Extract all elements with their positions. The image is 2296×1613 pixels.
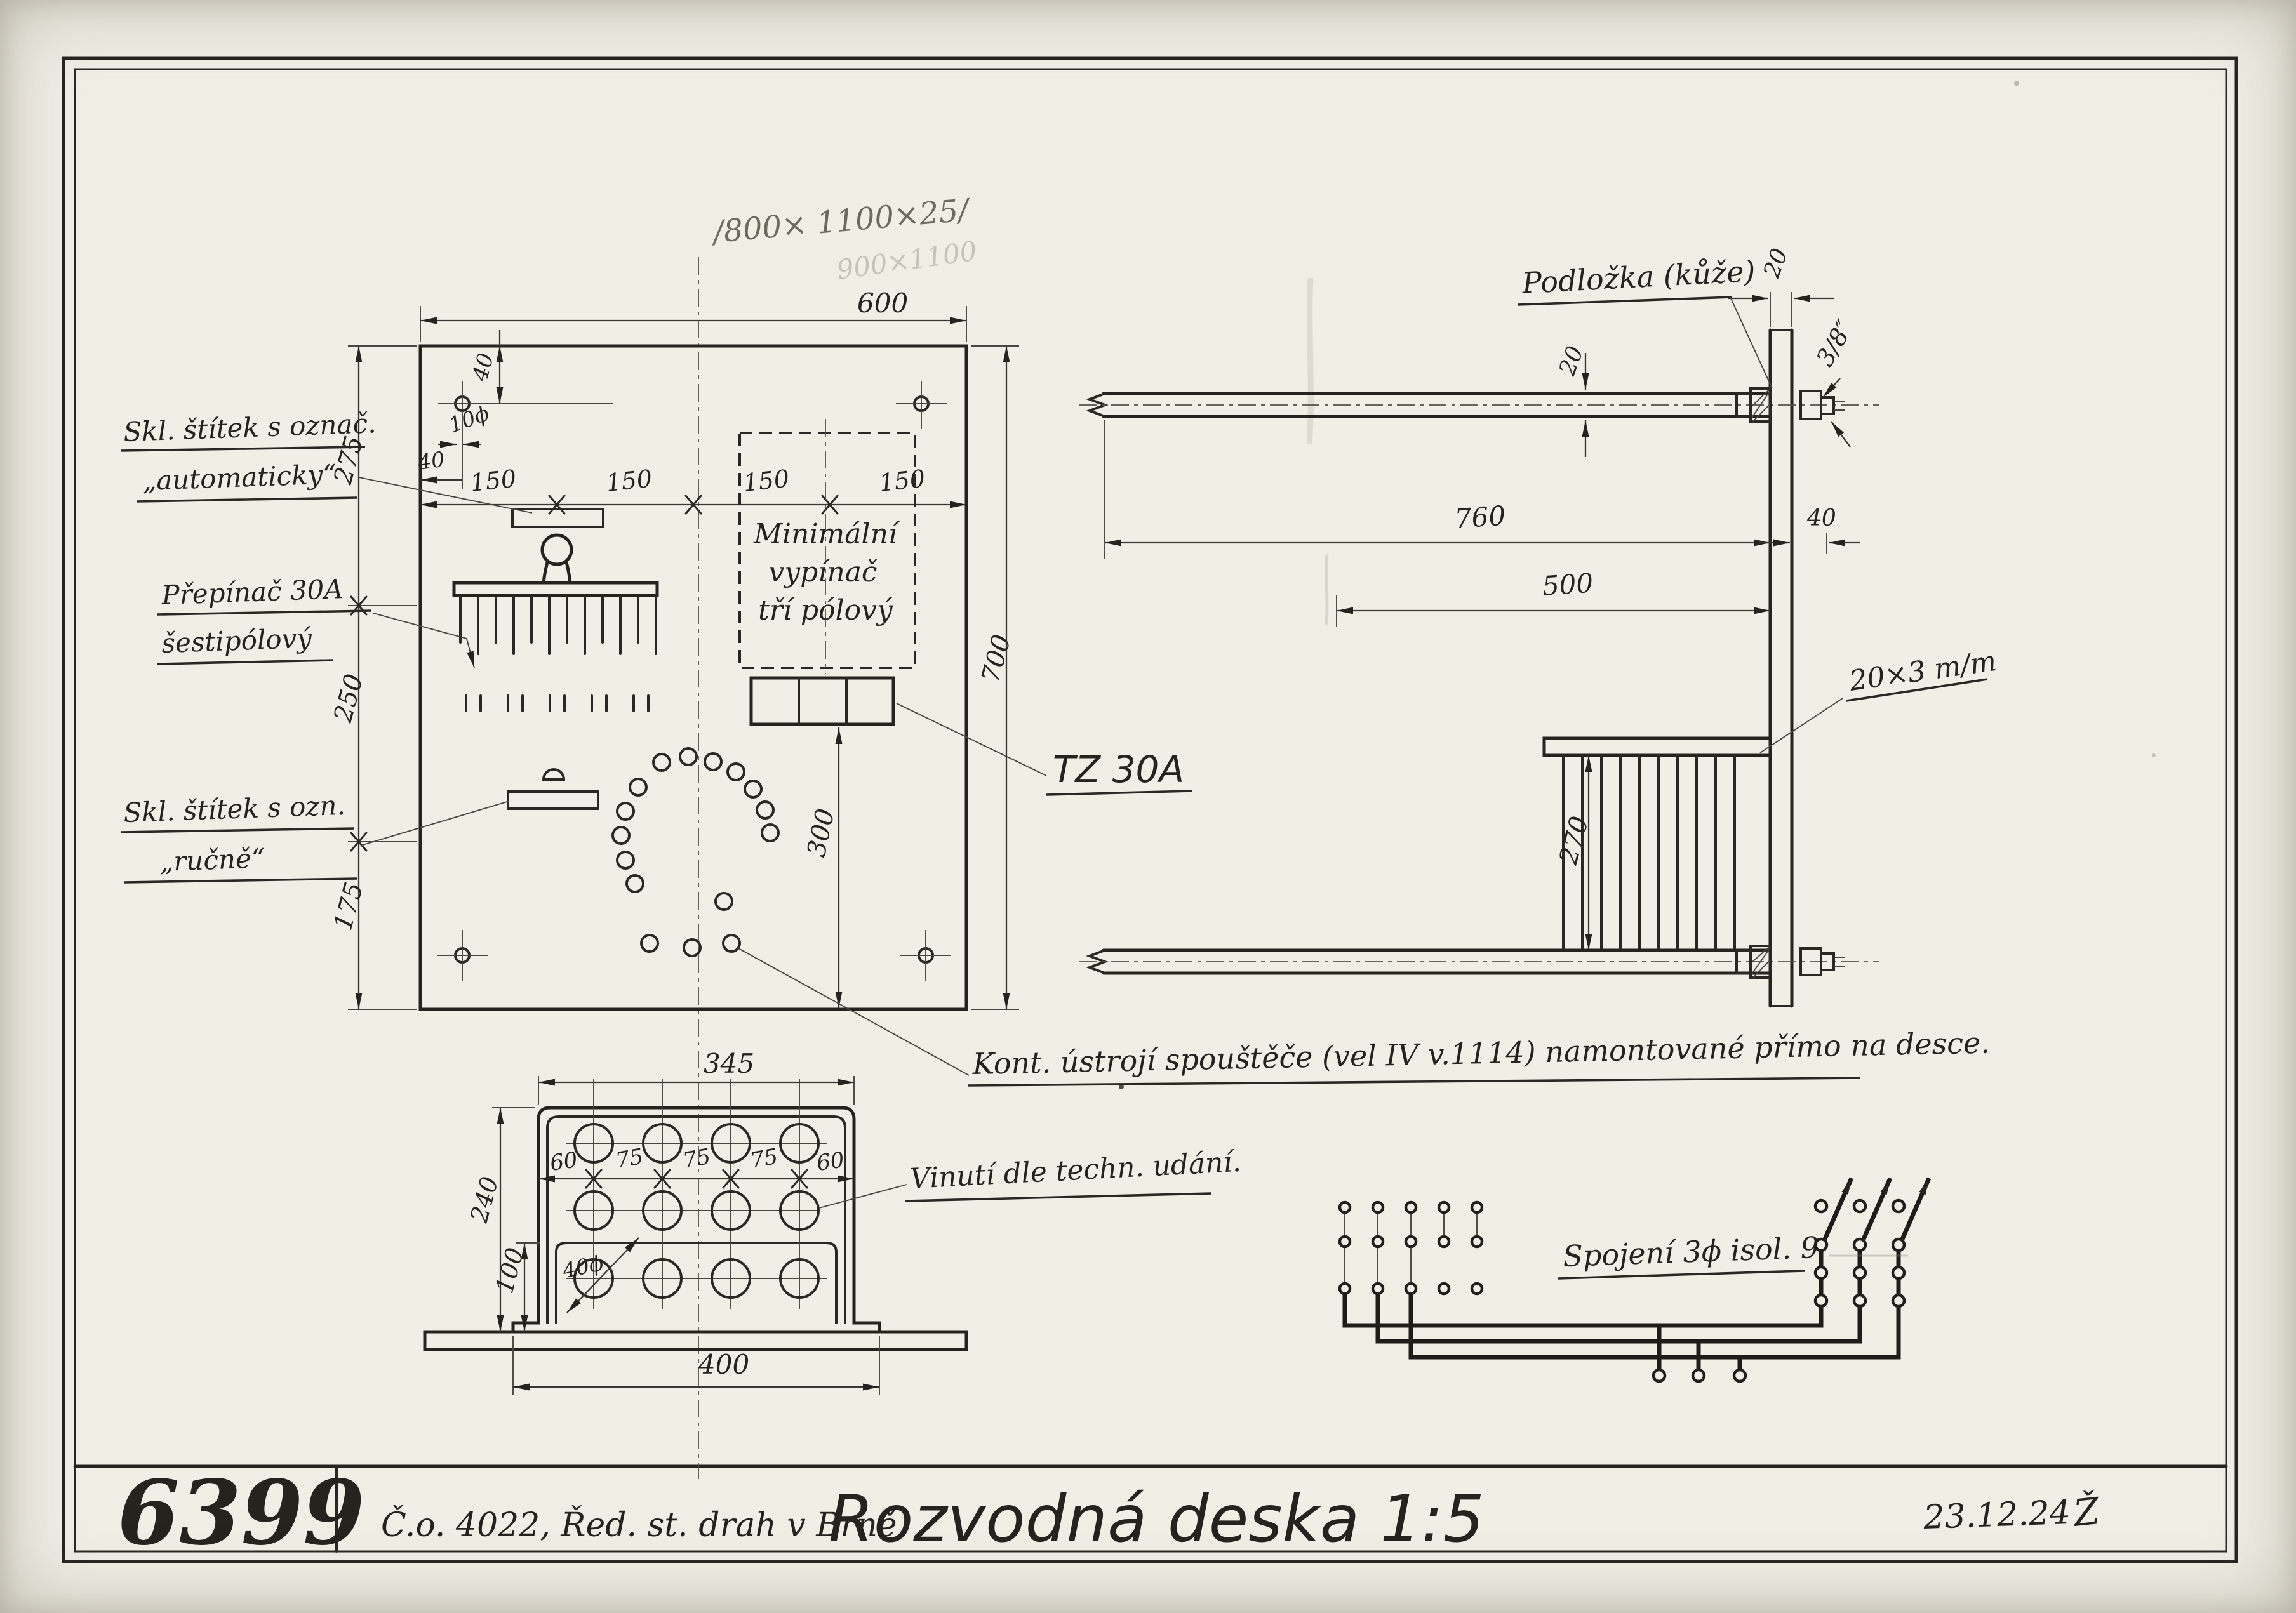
label-kont: Kont. ústrojí spouštěče (vel IV v.1114) … <box>971 1025 1990 1081</box>
base-panel-edge <box>425 1332 966 1350</box>
bottom-section-view: 345 60 75 75 75 60 240 100 40ϕ <box>425 1048 1242 1395</box>
tz-terminal-block: 300 <box>751 678 893 1008</box>
connection-schematic: Spojení 3ϕ isol. 9 <box>1340 1178 1929 1381</box>
dim-100: 100 <box>490 1243 540 1332</box>
dim-40-offset-label: 40 <box>1806 505 1836 531</box>
dim-40dia: 40ϕ <box>559 1238 639 1313</box>
label-tz: TZ 30A <box>1053 748 1184 791</box>
dim-box-spacing: 60 75 75 75 60 <box>538 1144 854 1188</box>
label-prepinac-line2: šestipólový <box>161 623 313 659</box>
dim-345-label: 345 <box>704 1048 754 1079</box>
leader-kont <box>738 948 969 1075</box>
dim-250-label: 250 <box>328 671 369 726</box>
leader-rucne <box>361 801 509 846</box>
dim-height-700: 700 <box>971 346 1019 1009</box>
dim-plate-20-label: 20 <box>1759 245 1794 282</box>
min-breaker-label-2: vypínač <box>768 556 878 588</box>
dim-150-label-1: 150 <box>469 465 517 497</box>
dim-40-offset: 40 <box>1759 505 1860 554</box>
dim-300-label: 300 <box>802 806 841 860</box>
label-podlozka: Podložka (kůže) <box>1521 254 1756 300</box>
minimal-breaker-zone: Minimální vypínač tří pólový <box>740 419 915 674</box>
dim-100-label: 100 <box>490 1245 529 1296</box>
dim-270: 270 <box>1554 755 1594 950</box>
manual-position-arc <box>544 769 564 780</box>
pencil-faint-note: 900×1100 <box>835 235 979 285</box>
dim-60-label-2: 60 <box>815 1147 846 1176</box>
dim-700-label: 700 <box>976 632 1017 686</box>
label-auto-line2: „automaticky“ <box>142 458 337 496</box>
leader-tz <box>897 703 1046 776</box>
vinuti-annotation: Vinutí dle techn. udání. <box>819 1146 1242 1208</box>
dim-150-label-3: 150 <box>742 465 791 497</box>
dim-bar-20: 20 <box>1554 343 1589 457</box>
dim-bolt-label: 3/8″ <box>1811 315 1859 371</box>
dim-60-label-1: 60 <box>549 1147 579 1176</box>
drawing-date: 23.12.24 <box>1922 1494 2071 1537</box>
dim-345: 345 <box>538 1048 854 1105</box>
label-rucne-line2: „ručně“ <box>159 842 265 877</box>
dim-760: 760 <box>1105 420 1770 559</box>
drawing-canvas: 6399 Č.o. 4022, Řed. st. drah v Brně. Ro… <box>0 0 2296 1613</box>
six-pole-switch <box>454 535 657 711</box>
box-outer-profile <box>513 1108 879 1332</box>
front-view: 600 700 275 250 175 40 10ϕ 40 <box>328 257 1019 1479</box>
dim-240-label: 240 <box>465 1174 504 1226</box>
dim-left-chain: 275 250 175 <box>328 346 417 1009</box>
dim-600-label: 600 <box>857 288 908 319</box>
panel-plate-edge <box>1770 330 1792 1006</box>
dim-hole-detail: 40 10ϕ 40 <box>416 330 500 480</box>
title-block: 6399 Č.o. 4022, Řed. st. drah v Brně. Ro… <box>75 1461 2226 1565</box>
dim-75-label-2: 75 <box>681 1144 713 1174</box>
dim-40-side-label: 40 <box>416 446 446 475</box>
dim-760-label: 760 <box>1453 500 1506 534</box>
bottom-busbar <box>1079 950 1879 973</box>
drawing-title: Rozvodná deska 1:5 <box>829 1482 1485 1557</box>
label-rucne-line1: Skl. štítek s ozn. <box>123 790 346 828</box>
schematic-wires <box>1345 1294 1899 1381</box>
label-prepinac-line1: Přepínač 30A <box>161 573 344 611</box>
dim-500: 500 <box>1337 568 1770 627</box>
schematic-terminal-grid <box>1340 1202 1482 1294</box>
drawing-number: 6399 <box>117 1461 365 1565</box>
dim-bar-20-label: 20 <box>1554 343 1589 380</box>
min-breaker-label-3: tří pólový <box>758 594 893 627</box>
signature-monogram: Ž <box>2070 1489 2102 1535</box>
dim-175-label: 175 <box>328 879 369 934</box>
dim-75-label-1: 75 <box>614 1144 646 1174</box>
bolt-callout: 3/8″ <box>1811 315 1859 447</box>
label-spojeni: Spojení 3ϕ isol. 9 <box>1562 1230 1819 1273</box>
dim-40-top-label: 40 <box>467 350 499 384</box>
margin-annotations: Skl. štítek s označ. „automaticky“ Přepí… <box>121 408 1990 1085</box>
top-busbar <box>1079 394 1879 416</box>
label-vinuti: Vinutí dle techn. udání. <box>909 1146 1242 1195</box>
side-view: 20 20 3/8″ <box>1079 245 1998 1006</box>
dim-150-label-4: 150 <box>878 465 926 497</box>
border-frame <box>63 58 2236 1562</box>
glass-label-manual-strip <box>508 792 598 809</box>
schematic-knife-switches <box>1815 1178 1929 1306</box>
dim-400: 400 <box>513 1336 879 1395</box>
dim-400-label: 400 <box>698 1349 749 1380</box>
dim-75-label-3: 75 <box>749 1144 780 1174</box>
dim-150-label-2: 150 <box>604 465 653 497</box>
dim-10dia-label: 10ϕ <box>445 401 492 438</box>
drawing-sheet: 6399 Č.o. 4022, Řed. st. drah v Brně. Ro… <box>0 0 2296 1613</box>
dim-500-label: 500 <box>1541 568 1594 602</box>
dim-width-600: 600 <box>420 288 966 342</box>
starter-contact-holes <box>613 748 778 956</box>
pasovina-annotation: 20×3 m/m <box>1760 645 1998 753</box>
min-breaker-label-1: Minimální <box>753 518 900 550</box>
